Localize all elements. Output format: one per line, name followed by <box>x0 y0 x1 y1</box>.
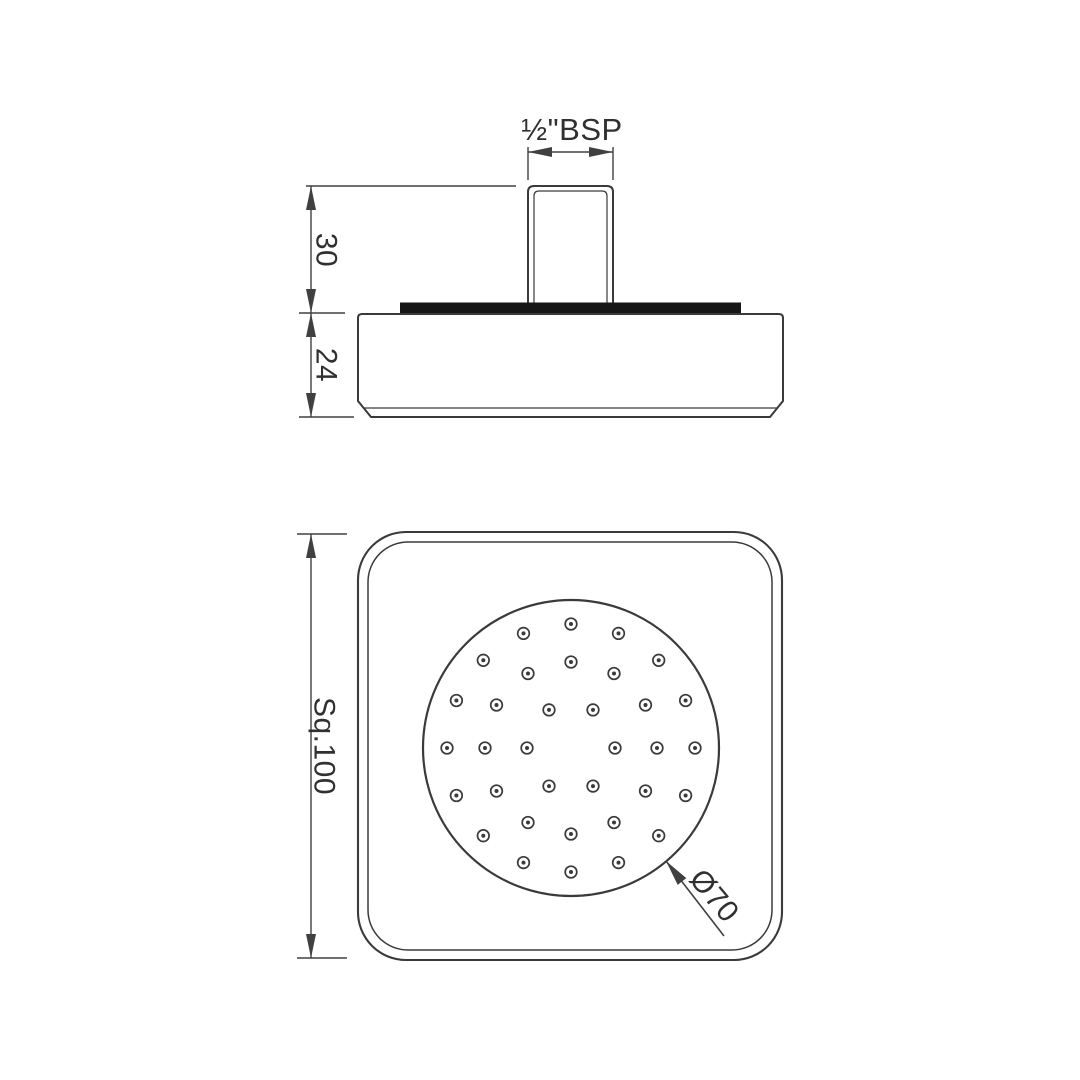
thread-label: ½"BSP <box>521 112 622 147</box>
nozzle-center-dot <box>547 784 551 788</box>
nozzle-center-dot <box>693 746 697 750</box>
drawing-canvas: ½"BSP 30 24 <box>0 0 1080 1080</box>
nozzle-center-dot <box>612 821 616 825</box>
nozzle-center-dot <box>454 794 458 798</box>
nozzle-center-dot <box>613 746 617 750</box>
nozzle-center-dot <box>483 746 487 750</box>
nozzle-center-dot <box>522 631 526 635</box>
nozzle-center-dot <box>526 672 530 676</box>
mounting-plate <box>400 303 741 315</box>
nozzle-center-dot <box>547 708 551 712</box>
nozzle-center-dot <box>684 794 688 798</box>
nozzle-center-dot <box>569 870 573 874</box>
nozzle-center-dot <box>481 834 485 838</box>
nozzle-center-dot <box>522 861 526 865</box>
nozzle-center-dot <box>644 789 648 793</box>
nozzle-center-dot <box>569 622 573 626</box>
paper-background <box>0 0 1080 1080</box>
nozzle-center-dot <box>655 746 659 750</box>
nozzle-center-dot <box>684 699 688 703</box>
nozzle-center-dot <box>657 834 661 838</box>
square-size-label: Sq.100 <box>308 697 341 795</box>
nozzle-center-dot <box>445 746 449 750</box>
nozzle-center-dot <box>612 672 616 676</box>
nozzle-center-dot <box>591 708 595 712</box>
nozzle-center-dot <box>591 784 595 788</box>
nozzle-center-dot <box>526 821 530 825</box>
nozzle-center-dot <box>569 832 573 836</box>
nozzle-center-dot <box>657 658 661 662</box>
nozzle-center-dot <box>617 631 621 635</box>
nozzle-center-dot <box>569 660 573 664</box>
nozzle-center-dot <box>454 699 458 703</box>
body-height-label: 24 <box>310 348 343 382</box>
nozzle-center-dot <box>617 861 621 865</box>
nozzle-center-dot <box>495 703 499 707</box>
nozzle-center-dot <box>495 789 499 793</box>
inlet-height-label: 30 <box>310 233 343 267</box>
nozzle-center-dot <box>481 658 485 662</box>
nozzle-center-dot <box>644 703 648 707</box>
nozzle-center-dot <box>525 746 529 750</box>
